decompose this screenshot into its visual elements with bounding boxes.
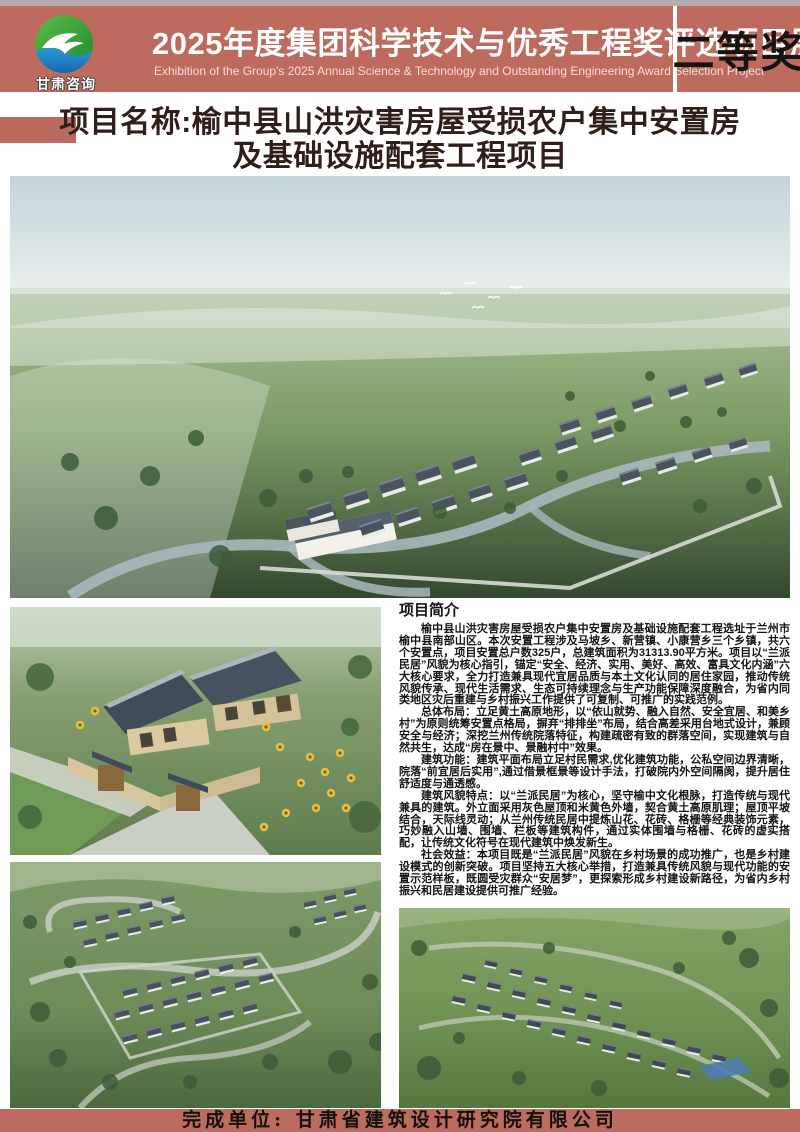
intro-paragraph: 建筑功能：建筑平面布局立足村民需求,优化建筑功能，公私空间边界清晰，院落“前宜居… <box>399 755 790 791</box>
intro-body: 榆中县山洪灾害房屋受损农户集中安置房及基础设施配套工程选址于兰州市榆中县南部山区… <box>399 624 790 898</box>
footer-completing-unit: 完成单位: 甘肃省建筑设计研究院有限公司 <box>182 1109 618 1132</box>
courtyard-house-render-image <box>10 607 381 855</box>
intro-paragraph: 总体布局：立足黄土高原地形，以“依山就势、融入自然、安全宜居、和美乡村”为原则统… <box>399 707 790 755</box>
footer-bar: 完成单位: 甘肃省建筑设计研究院有限公司 <box>0 1109 800 1132</box>
banner-title: 2025年度集团科学技术与优秀工程奖评选项目展 <box>152 18 672 63</box>
logo: 甘肃咨询 <box>14 8 118 92</box>
project-title-line2: 及基础设施配套工程项目 <box>232 140 568 173</box>
main-aerial-render-image <box>10 176 790 598</box>
site-aerial-render-image-left <box>10 862 381 1108</box>
award-badge: 二等奖 <box>677 6 800 92</box>
banner-titles: 2025年度集团科学技术与优秀工程奖评选项目展 Exhibition of th… <box>152 6 672 92</box>
intro-paragraph: 榆中县山洪灾害房屋受损农户集中安置房及基础设施配套工程选址于兰州市榆中县南部山区… <box>399 624 790 707</box>
intro-heading: 项目简介 <box>399 599 790 620</box>
project-title-line1: 项目名称:榆中县山洪灾害房屋受损农户集中安置房 <box>59 106 741 139</box>
poster-page: 甘肃咨询 2025年度集团科学技术与优秀工程奖评选项目展 Exhibition … <box>0 0 800 1132</box>
logo-text: 甘肃咨询 <box>14 74 118 94</box>
intro-paragraph: 社会效益：本项目既是“兰派民居”风貌在乡村场景的成功推广，也是乡村建设模式的创新… <box>399 850 790 898</box>
header-banner: 甘肃咨询 2025年度集团科学技术与优秀工程奖评选项目展 Exhibition … <box>0 6 800 92</box>
award-badge-text: 二等奖 <box>673 19 800 80</box>
intro-paragraph: 建筑风貌特点：以“兰派民居”为核心，坚守榆中文化根脉，打造传统与现代兼具的建筑。… <box>399 791 790 851</box>
site-aerial-render-image-right <box>399 908 790 1108</box>
project-title: 项目名称:榆中县山洪灾害房屋受损农户集中安置房及基础设施配套工程项目 <box>0 106 800 174</box>
logo-icon <box>34 14 94 74</box>
banner-subtitle-en: Exhibition of the Group's 2025 Annual Sc… <box>154 64 674 78</box>
